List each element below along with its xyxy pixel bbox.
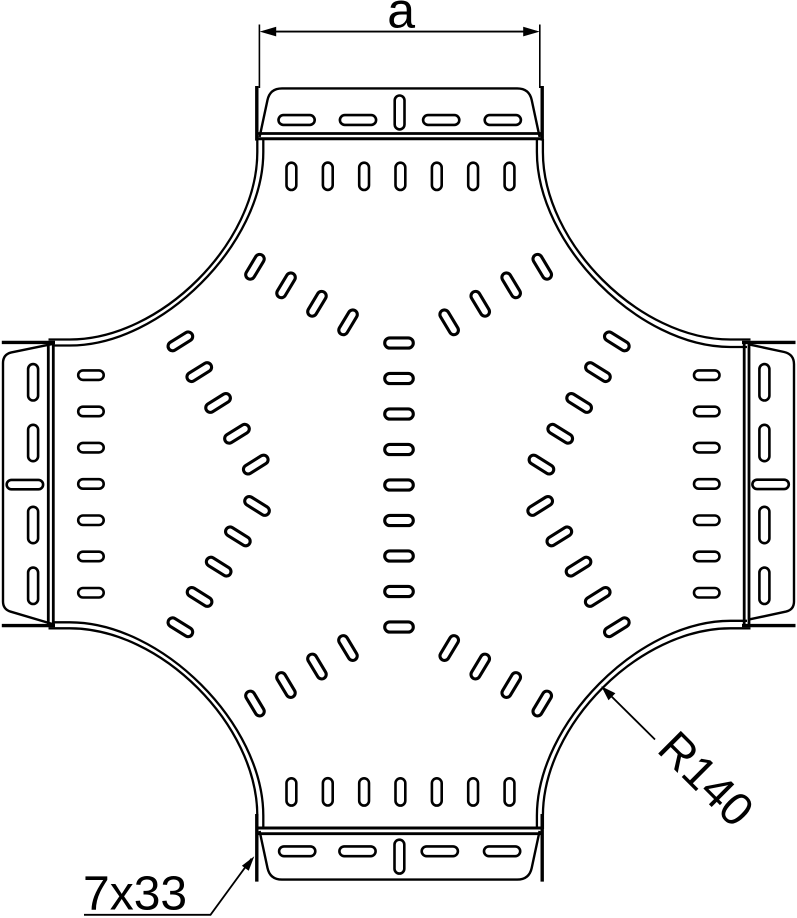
svg-text:a: a <box>387 0 415 39</box>
svg-text:7x33: 7x33 <box>83 868 187 918</box>
